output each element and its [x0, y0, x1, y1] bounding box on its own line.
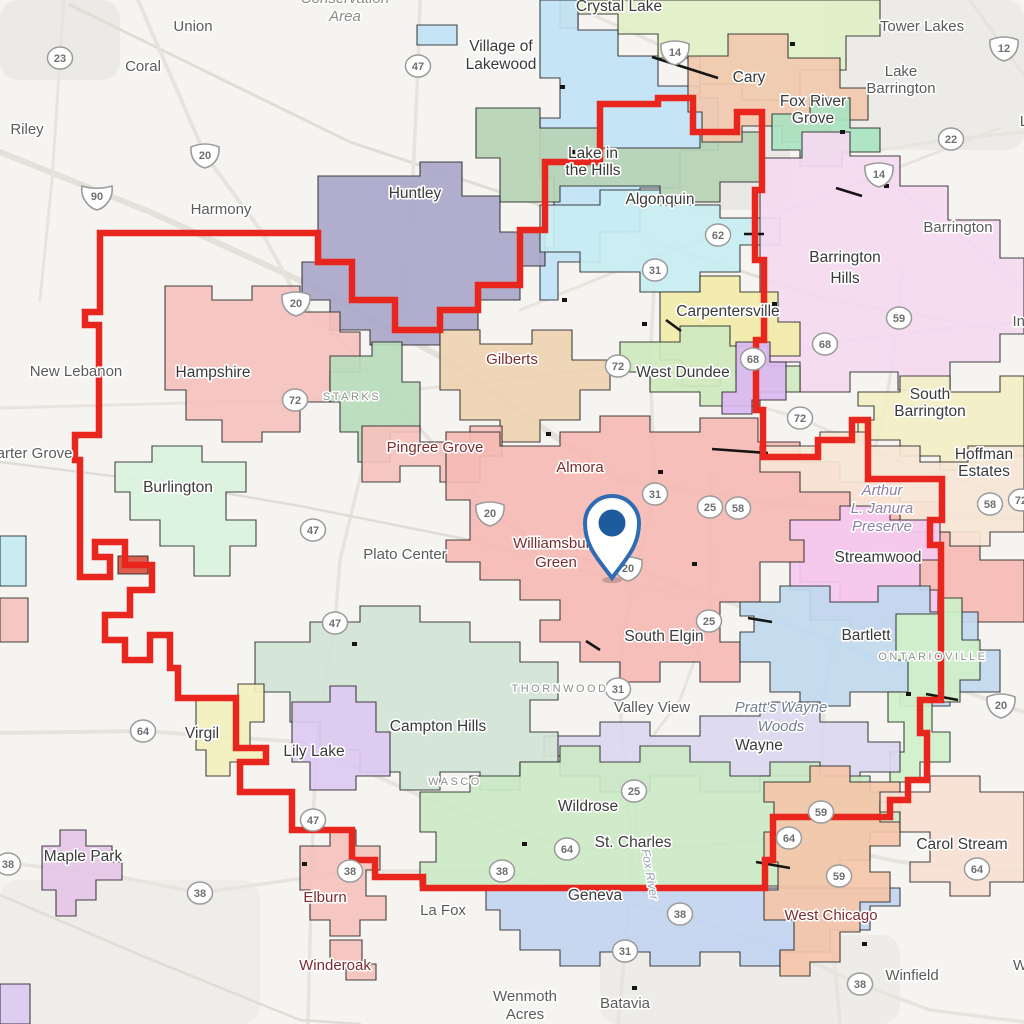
parcel-dot: [840, 130, 845, 134]
parcel-dot: [642, 322, 647, 326]
map-label-starks: STARKS: [323, 391, 381, 403]
map-label-winderoak: Winderoak: [299, 957, 371, 974]
route-shield-number: 20: [290, 298, 302, 310]
route-shield-38: 38: [848, 973, 873, 995]
map-label-hampshire: Hampshire: [176, 364, 251, 381]
route-shield-number: 47: [329, 618, 341, 630]
region-top-blue-bit: [417, 25, 457, 45]
route-shield-number: 72: [612, 361, 624, 373]
route-shield-62: 62: [706, 224, 731, 246]
parcel-dot: [906, 692, 911, 696]
map-label-lake-in-the-hills: Lake inthe Hills: [565, 145, 620, 179]
route-shield-number: 68: [747, 354, 759, 366]
map-label-la-fox: La Fox: [420, 902, 466, 919]
route-shield-number: 59: [893, 313, 905, 325]
route-shield-31: 31: [643, 483, 668, 505]
parcel-dot: [790, 42, 795, 46]
route-shield-number: 72: [289, 395, 301, 407]
route-shield-47: 47: [301, 809, 326, 831]
route-shield-number: 22: [945, 134, 957, 146]
route-shield-number: 12: [998, 43, 1010, 55]
map-label-charter-grove: Charter Grove: [0, 445, 73, 462]
route-shield-number: 58: [732, 503, 744, 515]
route-shield-38: 38: [668, 903, 693, 925]
map-label-new-lebanon: New Lebanon: [30, 363, 123, 380]
map-label-valley-view: Valley View: [614, 699, 690, 716]
route-shield-number: 38: [854, 979, 866, 991]
map-label-lily-lake: Lily Lake: [283, 743, 344, 760]
route-shield-64: 64: [131, 720, 156, 742]
map-label-campton-hills: Campton Hills: [390, 718, 487, 735]
route-shield-number: 59: [815, 807, 827, 819]
map-label-batavia: Batavia: [600, 995, 651, 1012]
route-shield-number: 47: [307, 815, 319, 827]
map-label-south-elgin: South Elgin: [624, 628, 703, 645]
map-label-harmony: Harmony: [191, 201, 252, 218]
route-shield-31: 31: [643, 259, 668, 281]
parcel-dot: [560, 85, 565, 89]
route-shield-38: 38: [338, 860, 363, 882]
route-shield-68: 68: [741, 348, 766, 370]
pin-dot: [599, 510, 626, 537]
parcel-dot: [632, 986, 637, 990]
route-shield-64: 64: [555, 838, 580, 860]
map-label-wildrose: Wildrose: [558, 798, 618, 815]
region-left-edge-cyan: [0, 536, 26, 586]
map-label-thornwood: THORNWOOD: [511, 683, 608, 695]
map-label-carpentersville: Carpentersville: [676, 303, 779, 320]
parcel-dot: [862, 942, 867, 946]
route-shield-72: 72: [788, 407, 813, 429]
route-shield-number: 38: [344, 866, 356, 878]
region-bottom-left-lavender: [0, 984, 30, 1024]
route-shield-number: 25: [704, 502, 716, 514]
map-label-carol-stream: Carol Stream: [916, 836, 1007, 853]
parcel-dot: [692, 562, 697, 566]
parcel-dot: [546, 432, 551, 436]
route-shield-number: 20: [995, 700, 1007, 712]
map-label-almora: Almora: [556, 459, 604, 476]
map-label-bartlett: Bartlett: [841, 627, 891, 644]
parcel-dot: [658, 470, 663, 474]
route-shield-number: 90: [91, 191, 103, 203]
map-label-inverness: Inverness: [1012, 313, 1024, 330]
route-shield-58: 58: [978, 493, 1003, 515]
route-shield-38: 38: [0, 853, 21, 875]
route-shield-47: 47: [301, 519, 326, 541]
map-label-union: Union: [173, 18, 212, 35]
map-viewport[interactable]: 2347474747122214146231313131595959686872…: [0, 0, 1024, 1024]
route-shield-59: 59: [809, 801, 834, 823]
map-label-gilberts: Gilberts: [486, 351, 538, 368]
map-label-pingree-grove: Pingree Grove: [387, 439, 484, 456]
map-label-burlington: Burlington: [143, 479, 213, 496]
parcel-dot: [352, 642, 357, 646]
map-canvas[interactable]: 2347474747122214146231313131595959686872…: [0, 0, 1024, 1024]
route-shield-number: 14: [669, 47, 682, 59]
map-label-virgil: Virgil: [185, 725, 219, 742]
map-label-wayne: Wayne: [735, 737, 783, 754]
route-shield-number: 25: [703, 616, 715, 628]
route-shield-number: 64: [971, 864, 984, 876]
route-shield-number: 68: [819, 339, 831, 351]
route-shield-31: 31: [606, 678, 631, 700]
route-shield-number: 47: [412, 61, 424, 73]
route-shield-72: 72: [606, 355, 631, 377]
route-shield-25: 25: [622, 780, 647, 802]
route-shield-68: 68: [813, 333, 838, 355]
map-label-riley: Riley: [10, 121, 44, 138]
route-shield-38: 38: [188, 882, 213, 904]
parcel-dot: [562, 298, 567, 302]
map-label-maple-park: Maple Park: [44, 848, 123, 865]
map-label-streamwood: Streamwood: [834, 549, 921, 566]
route-shield-number: 20: [484, 508, 496, 520]
route-shield-59: 59: [827, 865, 852, 887]
map-label-geneva: Geneva: [568, 887, 623, 904]
map-label-lake: Lake: [1020, 113, 1024, 130]
map-label-hoffman-estates: HoffmanEstates: [955, 446, 1013, 480]
route-shield-number: 59: [833, 871, 845, 883]
route-shield-number: 20: [199, 150, 211, 162]
route-shield-number: 58: [984, 499, 996, 511]
route-shield-72: 72: [283, 389, 308, 411]
parcel-dot: [522, 842, 527, 846]
map-label-st-charles: St. Charles: [595, 834, 672, 851]
route-shield-47: 47: [406, 55, 431, 77]
route-shield-number: 72: [794, 413, 806, 425]
route-shield-number: 14: [873, 169, 886, 181]
route-shield-number: 38: [496, 866, 508, 878]
route-shield-number: 38: [194, 888, 206, 900]
route-shield-58: 58: [726, 497, 751, 519]
map-label-wheaton: Wheaton: [1013, 957, 1024, 974]
route-shield-number: 64: [561, 844, 574, 856]
route-shield-number: 31: [612, 684, 624, 696]
route-shield-38: 38: [490, 860, 515, 882]
route-shield-25: 25: [698, 496, 723, 518]
map-label-crystal-lake: Crystal Lake: [576, 0, 662, 15]
map-label-coral: Coral: [125, 58, 161, 75]
route-shield-number: 62: [712, 230, 724, 242]
route-shield-number: 72: [1015, 495, 1024, 507]
route-shield-number: 31: [649, 265, 661, 277]
map-label-west-chicago: West Chicago: [784, 907, 877, 924]
map-label-wasco: WASCO: [428, 776, 482, 788]
map-label-west-dundee: West Dundee: [636, 364, 730, 381]
route-shield-number: 64: [783, 833, 796, 845]
route-shield-number: 31: [619, 946, 631, 958]
map-label-barrington: Barrington: [923, 219, 992, 236]
route-shield-number: 25: [628, 786, 640, 798]
map-label-plato-center: Plato Center: [363, 546, 446, 563]
map-label-cary: Cary: [733, 69, 766, 86]
route-shield-number: 64: [137, 726, 150, 738]
route-shield-number: 47: [307, 525, 319, 537]
map-label-algonquin: Algonquin: [626, 191, 695, 208]
region-left-edge-pink: [0, 598, 28, 642]
map-label-huntley: Huntley: [389, 185, 442, 202]
route-shield-number: 38: [674, 909, 686, 921]
route-shield-64: 64: [965, 858, 990, 880]
route-shield-23: 23: [48, 47, 73, 69]
route-shield-number: 38: [2, 859, 14, 871]
map-label-ontarioville: ONTARIOVILLE: [878, 651, 987, 663]
map-label-winfield: Winfield: [885, 967, 938, 984]
route-shield-number: 31: [649, 489, 661, 501]
route-shield-number: 23: [54, 53, 66, 65]
parcel-dot: [302, 862, 307, 866]
map-label-village-of-lakewood: Village ofLakewood: [466, 38, 537, 73]
route-shield-47: 47: [323, 612, 348, 634]
map-label-tower-lakes: Tower Lakes: [880, 18, 964, 35]
route-shield-59: 59: [887, 307, 912, 329]
map-label-elburn: Elburn: [303, 889, 346, 906]
route-shield-31: 31: [613, 940, 638, 962]
route-shield-64: 64: [777, 827, 802, 849]
route-shield-22: 22: [939, 128, 964, 150]
